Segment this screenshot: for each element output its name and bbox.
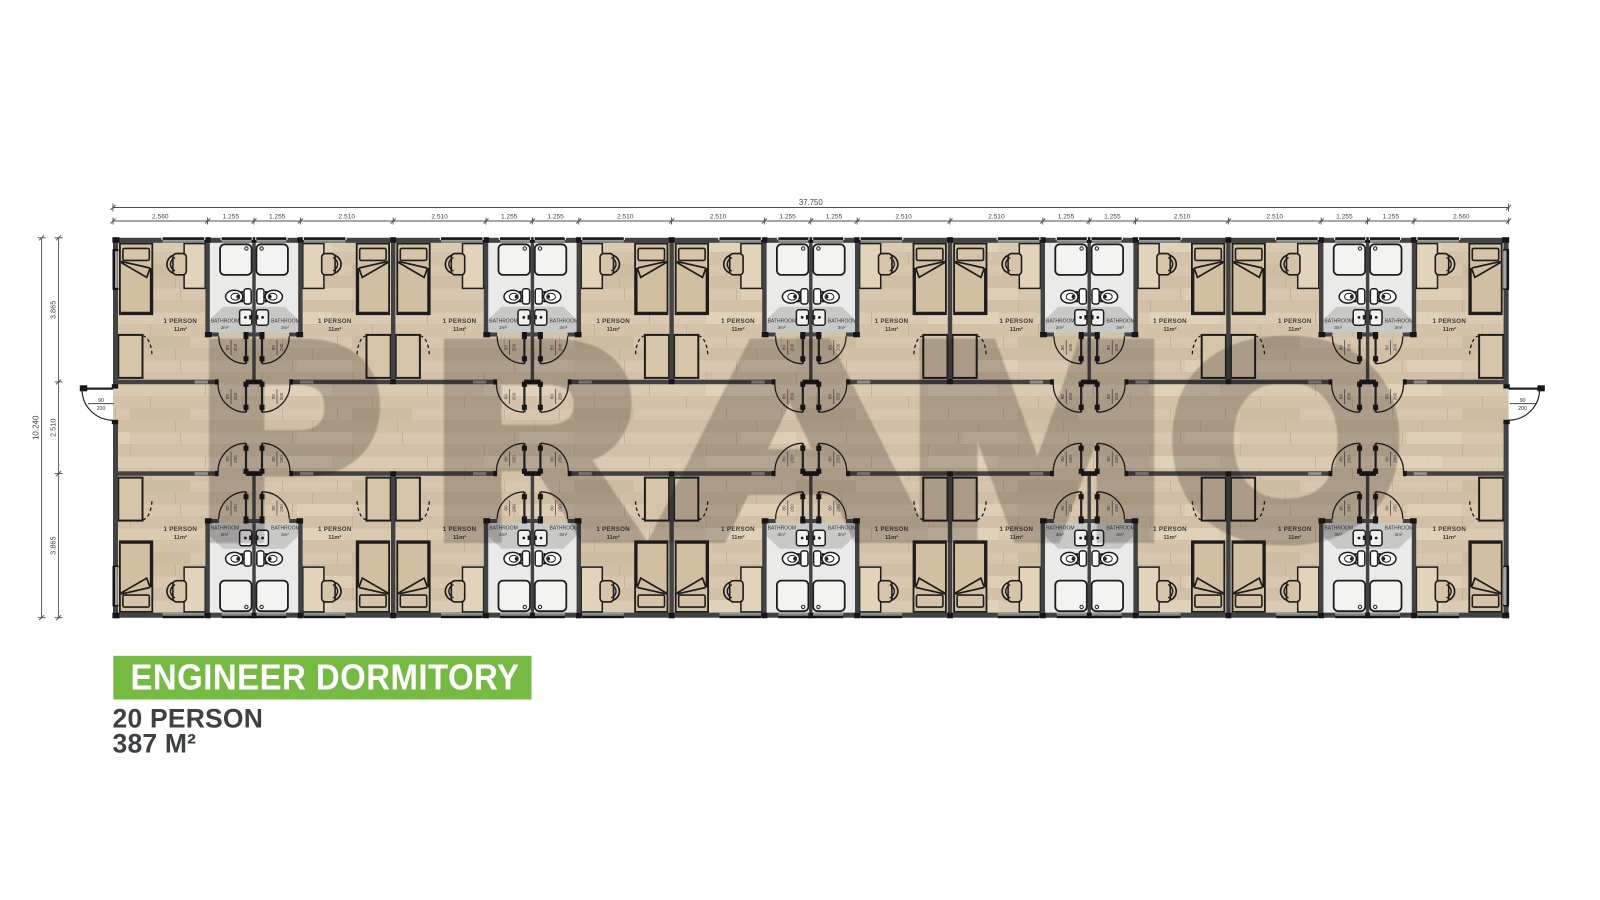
svg-text:37.750: 37.750 xyxy=(799,198,824,207)
svg-text:2.560: 2.560 xyxy=(152,213,169,220)
svg-text:2.510: 2.510 xyxy=(895,213,912,220)
svg-text:200: 200 xyxy=(97,406,106,412)
svg-text:90: 90 xyxy=(98,398,104,404)
svg-text:1.255: 1.255 xyxy=(1336,213,1353,220)
svg-text:R: R xyxy=(433,288,639,594)
svg-text:387 M²: 387 M² xyxy=(113,729,197,759)
svg-text:2.510: 2.510 xyxy=(431,213,448,220)
svg-text:2.510: 2.510 xyxy=(49,419,58,438)
svg-text:1.255: 1.255 xyxy=(779,213,796,220)
svg-text:1.255: 1.255 xyxy=(1058,213,1075,220)
svg-text:1.255: 1.255 xyxy=(1104,213,1121,220)
svg-text:M: M xyxy=(908,287,1166,593)
svg-text:10.240: 10.240 xyxy=(32,415,41,440)
svg-text:1.255: 1.255 xyxy=(269,213,286,220)
svg-text:3.865: 3.865 xyxy=(49,301,58,320)
svg-text:1 PERSON: 1 PERSON xyxy=(1432,526,1466,533)
svg-text:A: A xyxy=(653,287,926,593)
svg-text:O: O xyxy=(1169,288,1403,594)
svg-text:2.510: 2.510 xyxy=(339,213,356,220)
svg-text:1.255: 1.255 xyxy=(1383,213,1400,220)
svg-text:1.255: 1.255 xyxy=(826,213,843,220)
svg-text:1 PERSON: 1 PERSON xyxy=(163,318,197,325)
svg-text:2.510: 2.510 xyxy=(617,213,634,220)
svg-text:1 PERSON: 1 PERSON xyxy=(1432,318,1466,325)
svg-text:2.560: 2.560 xyxy=(1453,213,1470,220)
svg-text:90: 90 xyxy=(1520,398,1526,404)
svg-text:P: P xyxy=(199,288,382,594)
svg-text:2.510: 2.510 xyxy=(710,213,727,220)
svg-text:2.510: 2.510 xyxy=(988,213,1005,220)
svg-text:1 PERSON: 1 PERSON xyxy=(163,526,197,533)
svg-text:200: 200 xyxy=(1518,406,1527,412)
svg-text:1.255: 1.255 xyxy=(547,213,564,220)
svg-text:1.255: 1.255 xyxy=(501,213,518,220)
svg-text:11m²: 11m² xyxy=(1443,534,1456,541)
svg-text:2.510: 2.510 xyxy=(1267,213,1284,220)
svg-text:11m²: 11m² xyxy=(174,326,187,333)
svg-text:ENGINEER DORMITORY: ENGINEER DORMITORY xyxy=(131,657,520,698)
svg-text:11m²: 11m² xyxy=(1443,326,1456,333)
svg-text:3.865: 3.865 xyxy=(49,536,58,555)
svg-text:11m²: 11m² xyxy=(174,534,187,541)
svg-text:2.510: 2.510 xyxy=(1174,213,1191,220)
svg-text:1.255: 1.255 xyxy=(223,213,240,220)
